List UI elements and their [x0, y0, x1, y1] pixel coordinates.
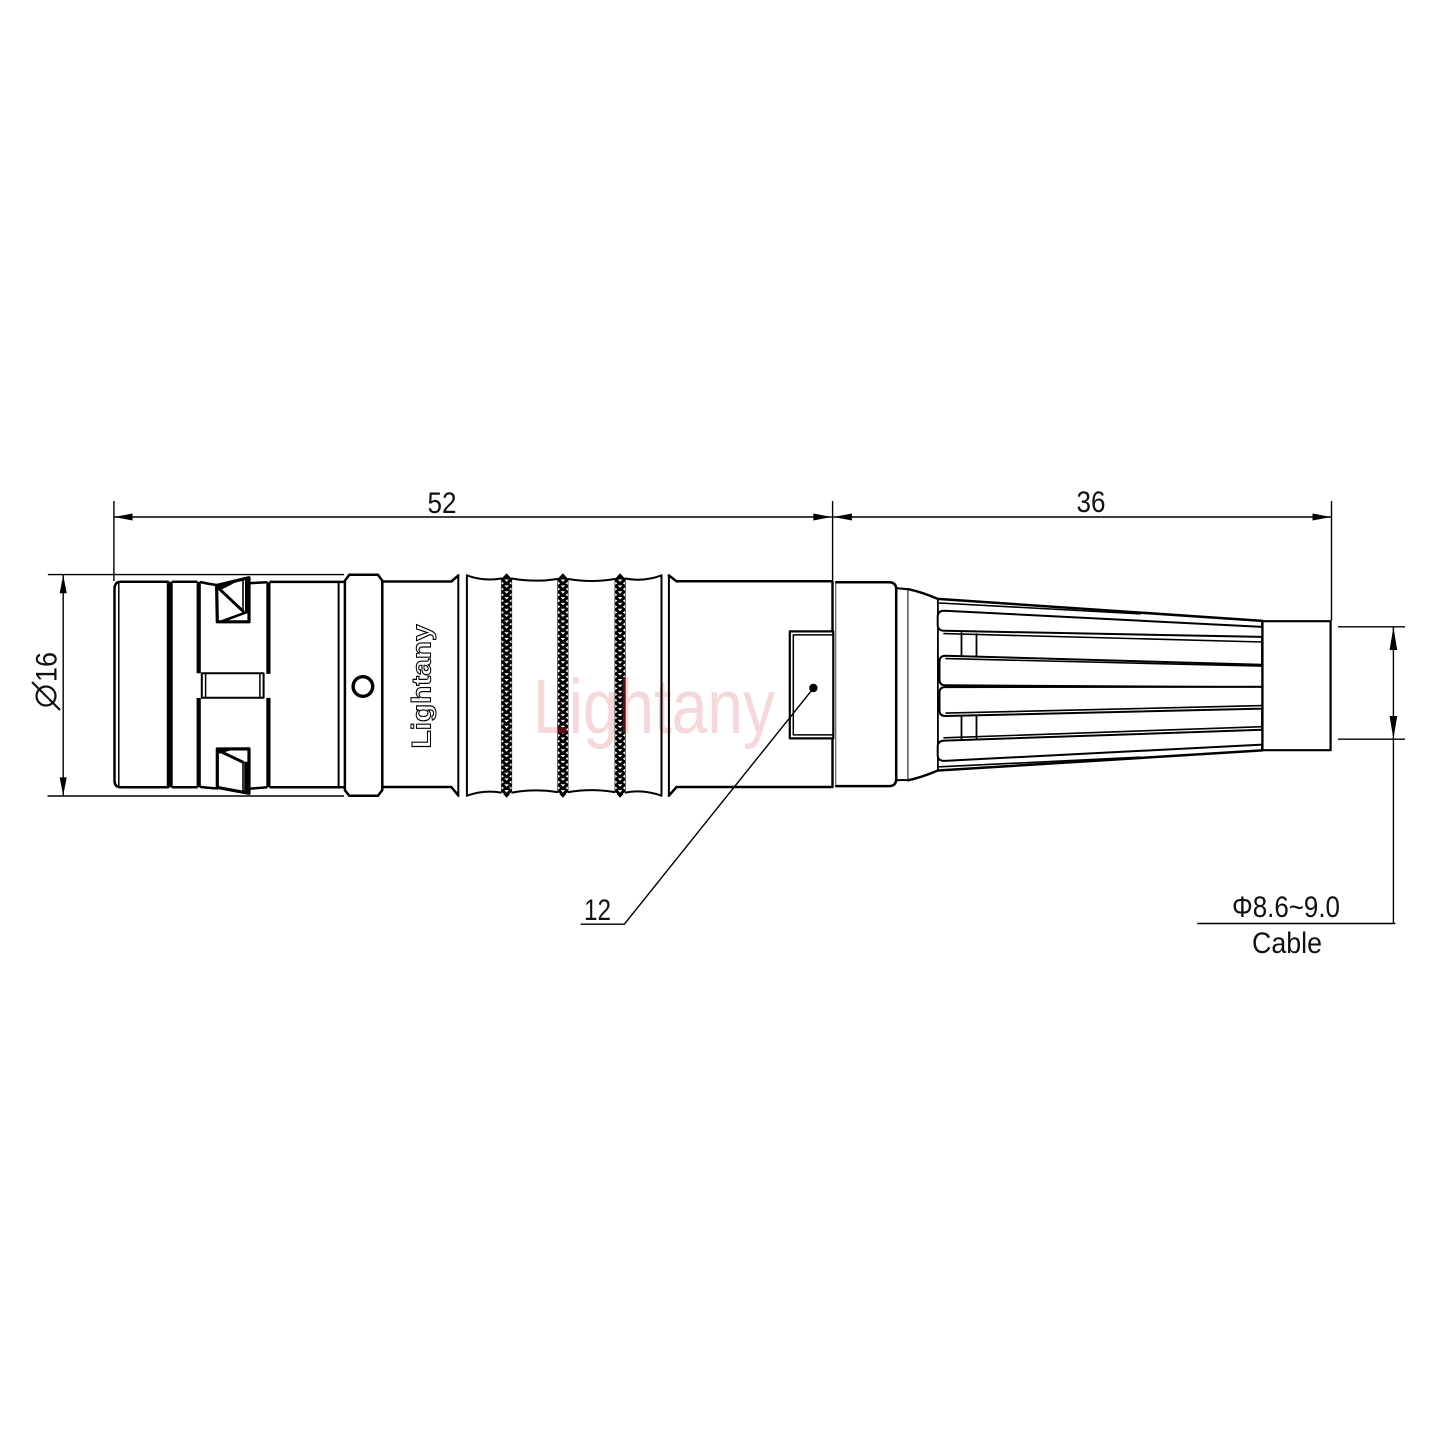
svg-text:Lightany: Lightany: [533, 664, 775, 750]
